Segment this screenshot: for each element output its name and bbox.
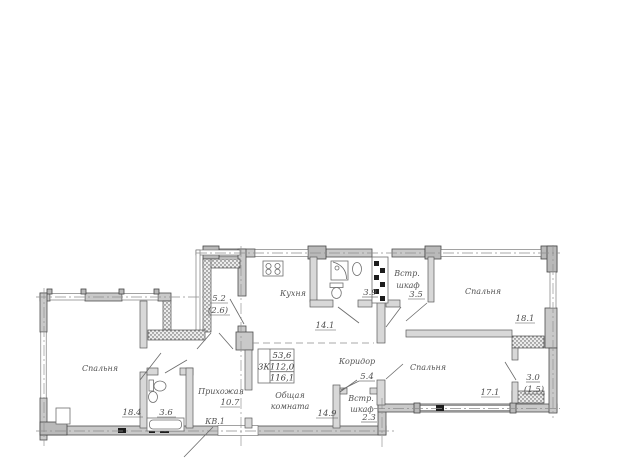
room-area-kitchen: 14.1 (316, 321, 335, 331)
window-sill-niche (56, 408, 70, 424)
room-label-living-room-2: комната (271, 402, 310, 411)
room-area-corridor: 5.4 (360, 372, 374, 382)
window-bedroom-left-side (41, 332, 46, 398)
room-label-living-room-1: Общая (275, 391, 305, 400)
window-bedroom-bottom-right (420, 406, 510, 411)
room-label-closet-top-2: шкаф (396, 281, 419, 290)
shower-icon (331, 261, 348, 280)
summary-table: 3К 53,6 112,0 116,1 (258, 349, 295, 384)
room-area-bedroom-top-right: 18.1 (516, 314, 535, 324)
room-label-kitchen: Кухня (279, 289, 306, 298)
room-area-bedroom-left: 18.4 (123, 408, 142, 418)
room-label-bedroom-top-right: Спальня (465, 287, 501, 296)
table-living-area: 53,6 (273, 351, 293, 361)
floor-plan-drawing: 3К 53,6 112,0 116,1 Спальня 18.4 3.6 При… (0, 0, 640, 473)
sink-icon-small-bath (149, 392, 158, 403)
room-label-closet-top-1: Встр. (393, 269, 420, 278)
room-area-bathroom-big: 3.9 (363, 288, 377, 298)
table-area: 112,0 (270, 363, 295, 373)
room-label-bedroom-left: Спальня (82, 364, 118, 373)
room-label-corridor: Коридор (338, 357, 375, 366)
room-area-closet-bottom: 2.3 (361, 413, 376, 423)
room-area-balcony-left: 5.2 (212, 294, 226, 304)
room-label-bedroom-bottom-right: Спальня (410, 363, 446, 372)
room-area-balcony-right: 3.0 (526, 373, 540, 383)
room-area-balcony-left-reduced: (2.6) (208, 305, 228, 316)
sink-icon-top-bath (353, 263, 362, 276)
room-area-bathroom-small: 3.6 (159, 408, 173, 418)
room-area-living-room: 14.9 (318, 409, 338, 419)
room-area-closet-top: 3.5 (409, 290, 423, 300)
room-label-closet-bottom-1: Встр. (347, 394, 374, 403)
bathtub-icon (147, 418, 184, 431)
floor-plan: 3К 53,6 112,0 116,1 Спальня 18.4 3.6 При… (0, 0, 640, 473)
table-rooms-count: 3К (258, 363, 270, 373)
toilet-icon-small-bath (149, 380, 166, 391)
room-area-bedroom-bottom-right: 17.1 (481, 388, 500, 398)
room-area-balcony-right-reduced: (1.5) (524, 384, 544, 395)
apartment-number-label: КВ.1 (204, 417, 225, 426)
stove-icon (263, 261, 283, 276)
room-area-hallway: 10.7 (221, 398, 241, 408)
table-total-area: 116,1 (270, 374, 294, 384)
room-label-hallway: Прихожая (197, 387, 244, 396)
